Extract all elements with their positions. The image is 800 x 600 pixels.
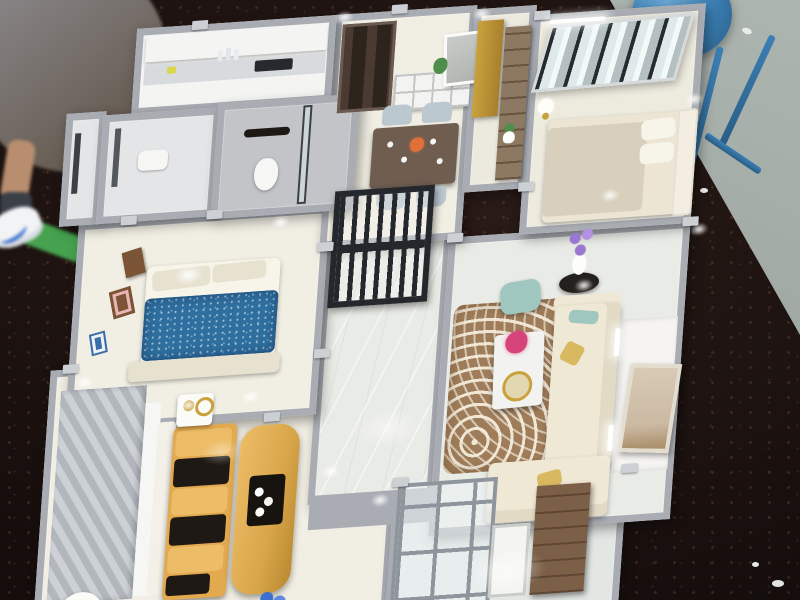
master-pillow xyxy=(639,141,674,165)
wall-cap xyxy=(621,463,638,473)
balcony-window-grid xyxy=(386,477,498,600)
blue-potted-flowers xyxy=(255,584,290,600)
black-slat-screen xyxy=(327,185,435,309)
wall-cap xyxy=(682,216,699,226)
striped-accent-wall xyxy=(46,385,147,600)
sage-throw-cushion xyxy=(568,309,600,324)
balcony-white-door xyxy=(488,523,531,598)
wall-cap xyxy=(518,182,535,192)
blue-wall-frame xyxy=(89,331,108,357)
gold-sofa-cushion xyxy=(175,427,233,457)
wall-cap xyxy=(62,364,79,374)
entry-door xyxy=(337,21,397,113)
wall-cap xyxy=(391,4,408,14)
blue-sparkle-duvet xyxy=(141,290,279,362)
wall-cap xyxy=(120,215,137,225)
miniature-bottle xyxy=(217,50,223,61)
black-sofa-cushion xyxy=(169,514,227,546)
wall-cap xyxy=(264,412,281,422)
wall-cap xyxy=(447,233,464,243)
apartment-scale-model xyxy=(6,0,712,600)
miniature-bottle xyxy=(233,49,239,60)
gold-sofa-cushion xyxy=(171,486,229,516)
wall-cap xyxy=(317,242,334,252)
gold-sofa-cushion xyxy=(167,544,225,574)
wall-cap xyxy=(206,209,223,219)
floor-scrap xyxy=(700,188,708,193)
purple-flowers xyxy=(565,223,597,259)
master-bed-duvet xyxy=(542,122,648,218)
black-sofa-cushion xyxy=(165,573,210,596)
black-sofa-cushion xyxy=(173,455,231,487)
wall-cap xyxy=(192,20,209,30)
wall-cap xyxy=(392,477,409,487)
wall-cap xyxy=(314,348,331,358)
miniature-bottle xyxy=(225,47,231,60)
dining-table xyxy=(369,123,459,189)
yellow-dish xyxy=(167,66,176,74)
table-scrap xyxy=(772,580,784,587)
dining-chair xyxy=(421,101,452,123)
wall-cap xyxy=(534,10,551,20)
exhibition-photo-scene xyxy=(0,0,800,600)
dining-chair xyxy=(382,104,413,126)
balcony-wood-sideboard xyxy=(529,482,590,595)
table-scrap xyxy=(752,562,759,567)
washbasin xyxy=(137,149,168,171)
